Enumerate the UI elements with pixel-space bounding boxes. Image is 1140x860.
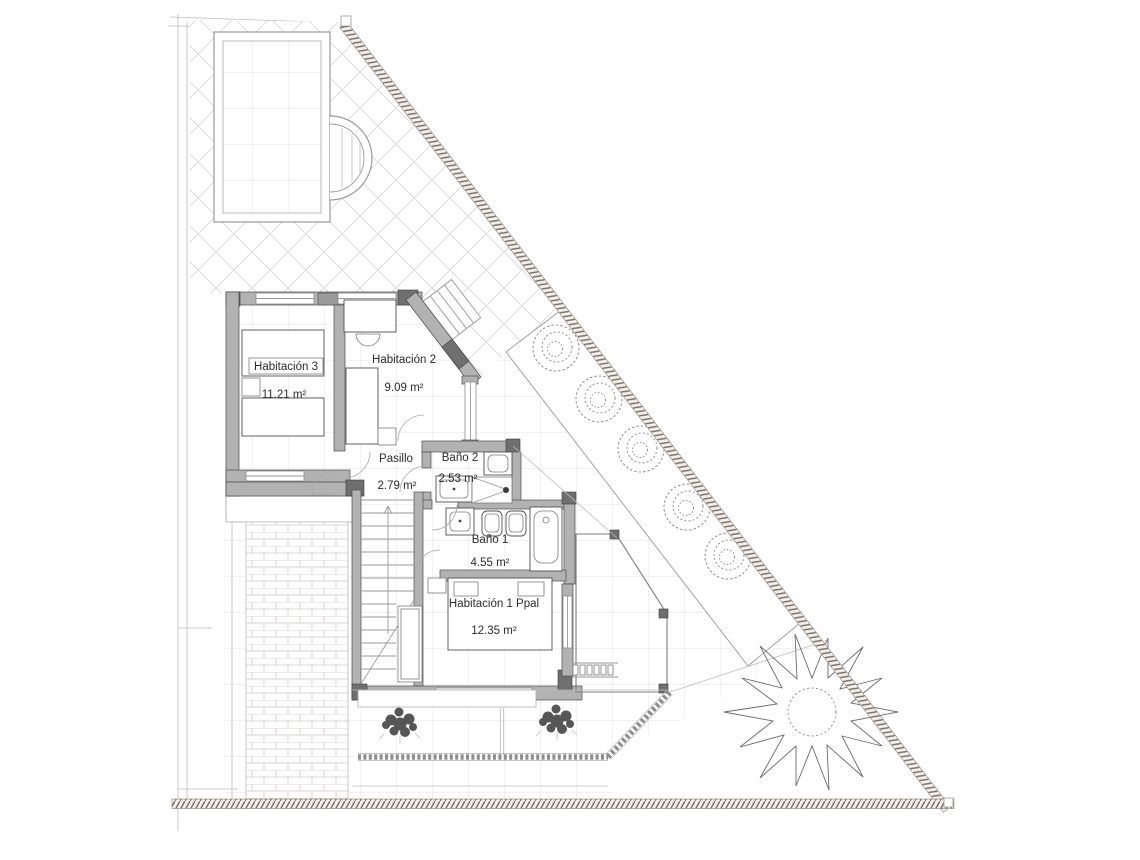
- paved-driveway: [246, 522, 348, 806]
- entry-landing: [226, 496, 354, 522]
- pillar: [562, 492, 576, 504]
- room-area-habitacion-2: 9.09 m²: [385, 382, 424, 394]
- room-name-habitacion-2: Habitación 2: [372, 354, 436, 366]
- post: [610, 530, 619, 539]
- room-name-pasillo: Pasillo: [379, 453, 413, 465]
- room-name-habitacion-3: Habitación 3: [254, 361, 318, 373]
- nightstand: [242, 378, 260, 396]
- room-area-bano-2: 2.53 m²: [439, 473, 478, 485]
- floor-plan-canvas: Habitación 3 11.21 m² Habitación 2 9.09 …: [0, 0, 1140, 860]
- boundary-corner-post: [341, 16, 351, 26]
- room-area-habitacion-3: 11.21 m²: [262, 389, 307, 401]
- bed: [242, 398, 324, 436]
- room-area-habitacion-1-ppal: 12.35 m²: [471, 625, 517, 637]
- room-name-habitacion-1-ppal: Habitación 1 Ppal: [449, 598, 539, 610]
- bed: [346, 368, 378, 444]
- nightstand: [378, 428, 396, 445]
- partition-wall: [334, 305, 345, 451]
- window-sill-step: [358, 690, 536, 707]
- pillow: [454, 582, 478, 596]
- room-area-pasillo: 2.79 m²: [378, 480, 417, 492]
- room-area-bano-1: 4.55 m²: [471, 557, 510, 569]
- room-name-bano-2: Baño 2: [442, 452, 478, 464]
- boundary-corner-post: [944, 798, 953, 807]
- pillow: [518, 582, 544, 596]
- nightstand: [428, 578, 446, 593]
- boundary-wall-bottom: [172, 799, 954, 809]
- post: [659, 609, 668, 618]
- room-name-bano-1: Baño 1: [472, 534, 508, 546]
- exterior-wall-left: [226, 292, 239, 496]
- desk: [344, 300, 396, 332]
